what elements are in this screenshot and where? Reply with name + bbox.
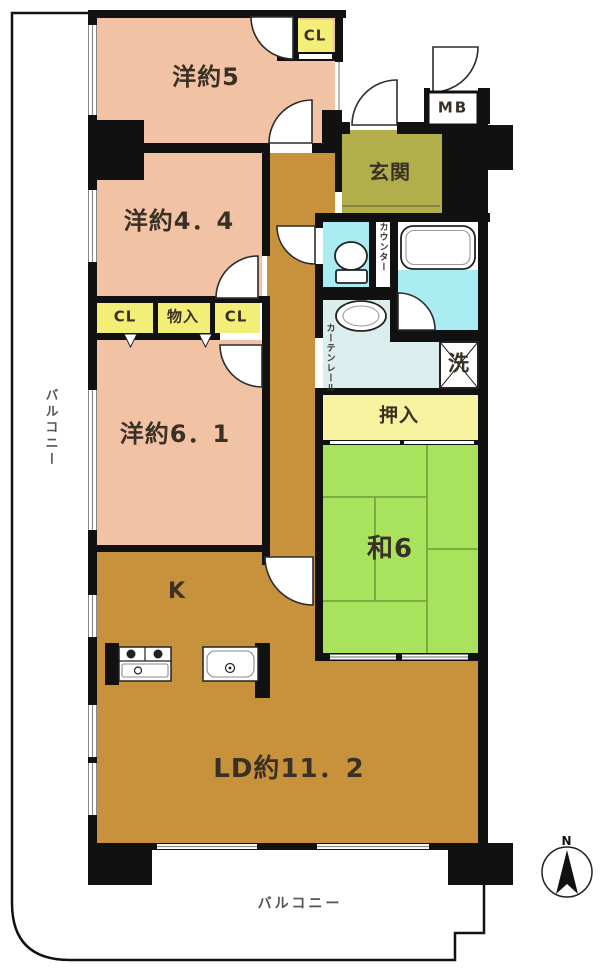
room-yo44-label: 洋約4．4 <box>124 209 234 233</box>
oshiire-label: 押入 <box>379 407 419 426</box>
closet-monoire-label: 物入 <box>167 310 199 325</box>
entrance-door-arc <box>433 47 478 92</box>
floor-plan: 洋約5 CL MB 玄関 洋約4．4 カウンター CL 物入 CL カーテンレー… <box>0 0 600 973</box>
ld-right-area <box>315 660 478 843</box>
curtain-rail-label: カーテンレール <box>325 323 334 393</box>
hall-upper-area <box>267 153 335 215</box>
bathtub-icon <box>401 226 475 269</box>
washbasin-icon <box>336 301 386 331</box>
meter-box-label: MB <box>438 101 468 116</box>
closet-cl-left-label: CL <box>114 310 137 325</box>
balcony-bottom-label: バルコニー <box>258 897 343 911</box>
balcony-left-label: バルコニー <box>44 388 57 468</box>
laundry-label: 洗 <box>448 354 470 375</box>
room-yo61-label: 洋約6．1 <box>120 422 230 446</box>
room-yo5-label: 洋約5 <box>172 65 240 89</box>
compass-north-label: N <box>561 835 572 847</box>
genkan-door-arc <box>352 80 397 125</box>
counter-label: カウンター <box>378 222 387 272</box>
closet-cl-top-label: CL <box>304 29 327 44</box>
sink-icon <box>203 647 258 681</box>
floor-plan-drawing <box>0 0 600 973</box>
kitchen-label: K <box>168 581 186 603</box>
room-wa6-label: 和6 <box>367 536 413 562</box>
compass-icon <box>542 847 592 897</box>
stove-icon <box>119 647 171 681</box>
closet-cl-right-label: CL <box>225 310 248 325</box>
genkan-label: 玄関 <box>369 162 411 182</box>
toilet-icon <box>335 242 367 283</box>
ld-label: LD約11．2 <box>213 756 364 782</box>
